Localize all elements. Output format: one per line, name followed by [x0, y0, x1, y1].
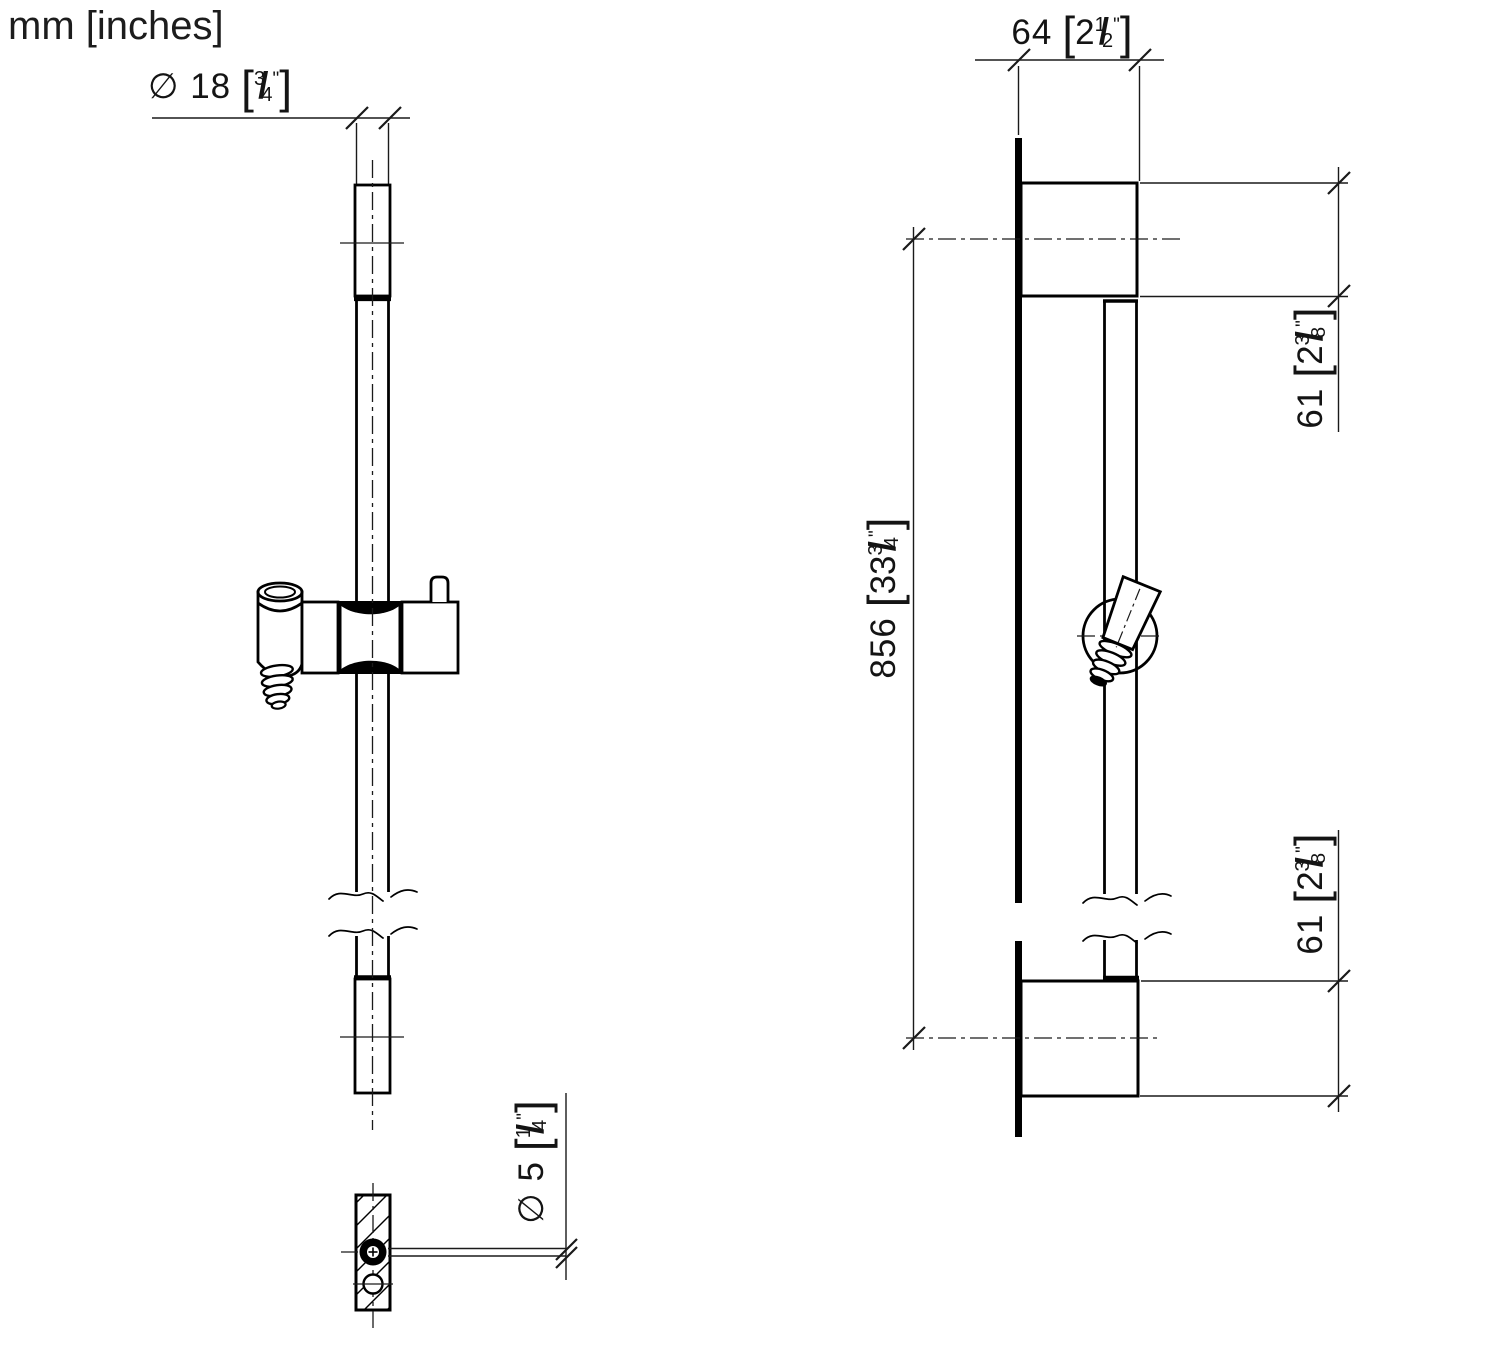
holder-screw: [260, 663, 298, 710]
technical-drawing-page: mm [inches] ∅ 18[3/4"] 64[21/2"] 61[23/8…: [0, 0, 1500, 1349]
drawing-canvas: [0, 0, 1500, 1349]
dim-bracket-depth-lines: [975, 49, 1164, 181]
side-rail-break: [1083, 894, 1171, 943]
side-view: [903, 49, 1350, 1137]
dim-rail-diameter-lines: [152, 107, 410, 184]
dim-rail-length-lines: [903, 227, 925, 1050]
section-view: [247, 1093, 577, 1328]
slider-knob: [431, 577, 448, 602]
front-view: [152, 107, 577, 1328]
handset-holder: [258, 583, 302, 676]
dim-screw-hole-lines: [388, 1093, 577, 1280]
slider-body: [302, 577, 458, 674]
dim-top-offset-lines: [1140, 167, 1350, 432]
dim-bottom-offset-lines: [1140, 830, 1350, 1112]
slider-front: [258, 577, 458, 710]
